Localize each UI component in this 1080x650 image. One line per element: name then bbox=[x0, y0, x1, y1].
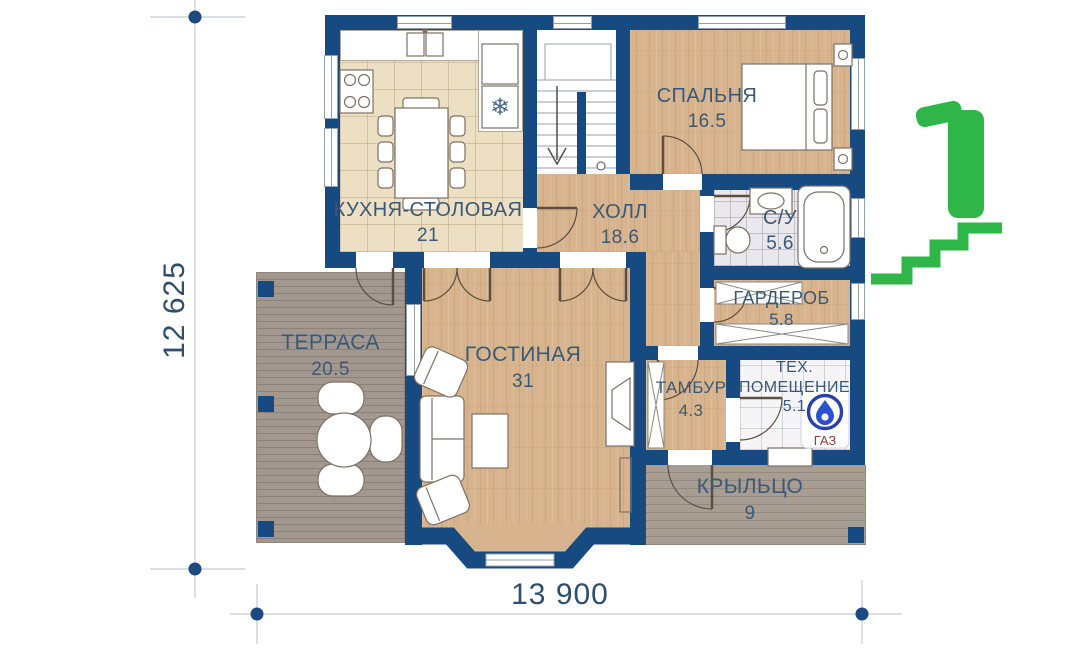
window bbox=[406, 304, 421, 376]
room-area: 16.5 bbox=[648, 110, 766, 133]
door-opening bbox=[663, 174, 702, 190]
floor-plan: ГАЗ ❄ 12 625 13 900 КУХНЯ-СТО bbox=[0, 0, 1080, 650]
window bbox=[851, 198, 865, 238]
room-area: 9 bbox=[695, 502, 805, 525]
door-opening bbox=[658, 346, 698, 360]
room-label-tambour: ТАМБУР 4.3 bbox=[646, 378, 736, 421]
bay-window bbox=[405, 524, 646, 566]
hall-corridor-floor bbox=[646, 252, 700, 346]
porch-post bbox=[848, 527, 864, 543]
dimension-marker bbox=[189, 11, 202, 24]
window bbox=[851, 283, 865, 320]
room-label-terrace: ТЕРРАСА 20.5 bbox=[263, 330, 398, 381]
room-area: 4.3 bbox=[646, 401, 736, 422]
dimension-marker bbox=[189, 563, 202, 576]
window bbox=[324, 55, 338, 119]
door-opening bbox=[424, 252, 490, 268]
room-name: КУХНЯ-СТОЛОВАЯ bbox=[333, 198, 523, 222]
dimension-width-label: 13 900 bbox=[511, 578, 609, 611]
door-opening bbox=[700, 196, 714, 232]
room-name: С/У bbox=[752, 206, 808, 230]
terrace-post bbox=[258, 521, 274, 537]
room-name: ХОЛЛ bbox=[575, 200, 665, 224]
wall bbox=[630, 450, 865, 465]
room-name: ТЕХ. ПОМЕЩЕНИЕ bbox=[737, 358, 852, 397]
window bbox=[553, 16, 592, 29]
wall bbox=[616, 30, 630, 174]
dimension-height-label: 12 625 bbox=[158, 261, 191, 359]
wall bbox=[630, 252, 646, 545]
room-area: 5.8 bbox=[714, 310, 849, 331]
room-area: 5.6 bbox=[752, 232, 808, 255]
room-area: 18.6 bbox=[575, 226, 665, 249]
staircase-floor bbox=[537, 30, 616, 174]
terrace-post bbox=[258, 281, 274, 297]
room-name: СПАЛЬНЯ bbox=[648, 84, 766, 108]
room-area: 31 bbox=[448, 370, 598, 393]
terrace-floor bbox=[256, 272, 405, 543]
terrace-post bbox=[258, 396, 274, 412]
wall bbox=[714, 266, 850, 280]
room-area: 5.1 bbox=[737, 397, 852, 417]
room-label-porch: КРЫЛЬЦО 9 bbox=[695, 474, 805, 525]
room-label-tech: ТЕХ. ПОМЕЩЕНИЕ 5.1 bbox=[737, 358, 852, 417]
door-opening bbox=[356, 252, 393, 268]
window bbox=[851, 58, 865, 130]
dimension-marker bbox=[856, 608, 869, 621]
room-name: ГАРДЕРОБ bbox=[714, 288, 849, 310]
room-label-living: ГОСТИНАЯ 31 bbox=[448, 342, 598, 393]
room-name: ГОСТИНАЯ bbox=[448, 342, 598, 368]
room-name: ТЕРРАСА bbox=[263, 330, 398, 356]
living-room-floor bbox=[422, 268, 630, 530]
door-opening bbox=[523, 208, 537, 248]
room-area: 20.5 bbox=[263, 358, 398, 381]
room-label-bedroom: СПАЛЬНЯ 16.5 bbox=[648, 84, 766, 134]
room-label-kitchen: КУХНЯ-СТОЛОВАЯ 21 bbox=[333, 198, 523, 248]
room-name: ТАМБУР bbox=[646, 378, 736, 399]
kitchen-appliance-column bbox=[478, 30, 523, 132]
door-opening bbox=[560, 252, 626, 268]
room-name: КРЫЛЬЦО bbox=[695, 474, 805, 500]
window bbox=[698, 16, 786, 29]
window bbox=[324, 128, 338, 187]
room-label-hall: ХОЛЛ 18.6 bbox=[575, 200, 665, 250]
room-area: 21 bbox=[333, 224, 523, 247]
door-opening bbox=[668, 450, 712, 465]
door-opening bbox=[700, 288, 714, 322]
first-floor-stairs-logo bbox=[871, 99, 1002, 279]
room-label-wardrobe: ГАРДЕРОБ 5.8 bbox=[714, 288, 849, 331]
window bbox=[397, 16, 452, 29]
dimension-marker bbox=[251, 608, 264, 621]
room-label-bathroom: С/У 5.6 bbox=[752, 206, 808, 256]
